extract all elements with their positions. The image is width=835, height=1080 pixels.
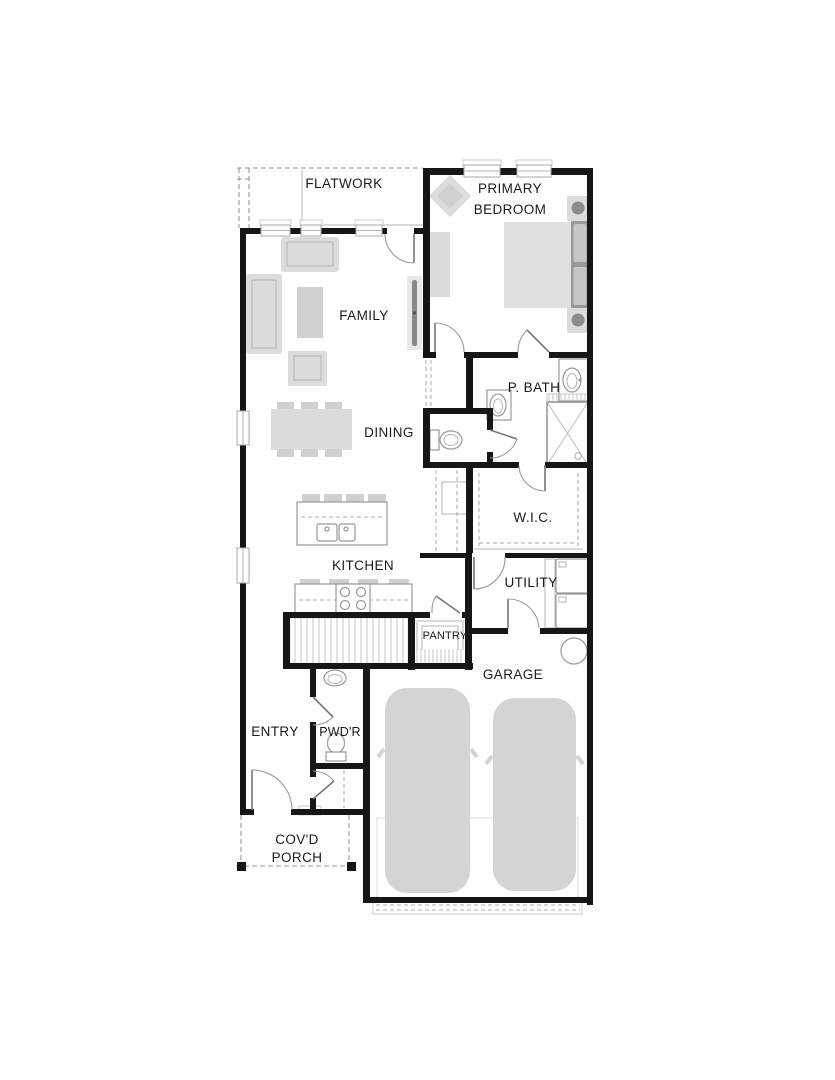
window (517, 165, 551, 177)
room-label-pantry: PANTRY (423, 630, 468, 642)
window (301, 225, 321, 236)
door-powder (313, 697, 333, 725)
bedroom-furniture (429, 175, 589, 333)
room-label-p-bath: P. BATH (508, 380, 561, 395)
dining-table (271, 409, 352, 450)
dining-furniture (271, 402, 352, 457)
room-label-entry: ENTRY (251, 724, 299, 739)
room-label-flatwork: FLATWORK (305, 176, 382, 191)
car-silhouette-left (378, 688, 477, 893)
family-furniture (246, 237, 422, 386)
door-entry-closet (313, 771, 334, 799)
water-heater (561, 638, 587, 664)
door-water-closet (490, 430, 517, 458)
door-wic-utility (474, 557, 505, 589)
room-label-utility: UTILITY (504, 575, 557, 590)
door-family-patio (385, 234, 414, 263)
shower (547, 394, 588, 465)
room-label-garage: GARAGE (483, 667, 543, 682)
room-label-porch-2: PORCH (272, 850, 323, 865)
window (261, 225, 290, 236)
kitchen-island (297, 494, 387, 545)
window (237, 548, 249, 583)
floor-plan-page: FLATWORK PRIMARY BEDROOM FAMILY P. BATH … (0, 0, 835, 1080)
door-bedroom-hall (435, 323, 464, 352)
door-bath-wic (519, 465, 545, 491)
hall-cabinet (442, 482, 467, 514)
door-bedroom-bath (518, 330, 549, 352)
room-label-wic: W.I.C. (513, 510, 552, 525)
toilet-icon (430, 430, 462, 450)
hatched-strip (290, 618, 408, 664)
dresser (429, 232, 450, 297)
sofa-left (246, 274, 282, 354)
room-label-kitchen: KITCHEN (332, 558, 394, 573)
cooktop (336, 584, 370, 613)
window (356, 225, 382, 236)
porch-post (237, 862, 246, 871)
pantry-hatch (415, 649, 464, 664)
room-label-porch-1: COV'D (275, 832, 319, 847)
lamp-icon (572, 202, 585, 215)
door-front-entry (252, 770, 292, 810)
room-label-dining: DINING (364, 425, 414, 440)
door-pantry (432, 596, 460, 613)
room-label-primary-bedroom-1: PRIMARY (478, 181, 542, 196)
door-utility-garage (508, 599, 539, 628)
floor-plan-image: FLATWORK PRIMARY BEDROOM FAMILY P. BATH … (0, 0, 835, 1080)
porch-post (347, 862, 356, 871)
coffee-table (297, 287, 323, 338)
car-silhouette-right (486, 698, 583, 891)
dryer (556, 594, 589, 628)
lamp-icon (572, 314, 585, 327)
room-label-powder: PWD'R (319, 725, 361, 739)
room-label-primary-bedroom-2: BEDROOM (474, 202, 547, 217)
room-label-family: FAMILY (339, 308, 388, 323)
window (464, 165, 500, 177)
window (237, 411, 249, 445)
washer (556, 559, 589, 593)
accent-chair (429, 175, 471, 217)
hall-details (426, 360, 467, 551)
powder-fixtures (299, 670, 346, 815)
kitchen-counter (295, 579, 412, 613)
windows (237, 165, 551, 583)
bed (504, 222, 572, 308)
